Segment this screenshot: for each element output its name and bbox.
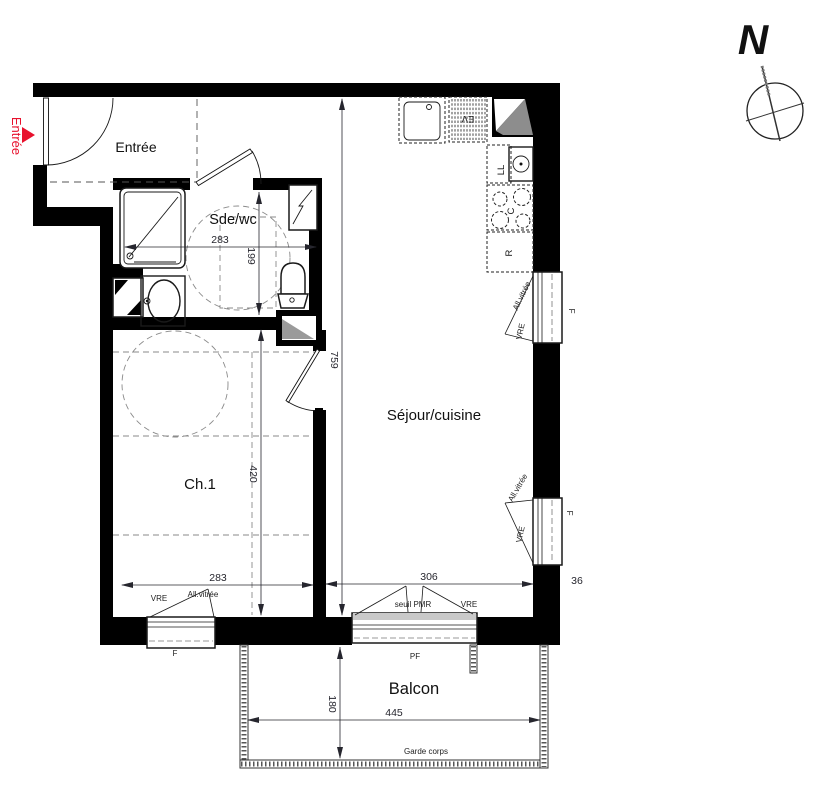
bathroom-fixtures bbox=[120, 188, 308, 326]
room-label-sdewc: Sde/wc bbox=[209, 212, 257, 228]
sink-label: EV bbox=[461, 113, 474, 124]
cooktop-burner-4 bbox=[516, 214, 530, 228]
window-glazing-label: All.vitrée bbox=[511, 280, 533, 312]
room-label-ch1: Ch.1 bbox=[184, 476, 216, 493]
window-bottom-f: VRE All.vitrée F bbox=[147, 589, 219, 658]
north-compass: N bbox=[738, 16, 804, 141]
room-label-entree: Entrée bbox=[115, 139, 156, 155]
compass-needle-tip bbox=[762, 66, 769, 95]
fridge-label: R bbox=[504, 249, 515, 256]
entry-marker: Entrée bbox=[9, 117, 35, 155]
wall-top bbox=[33, 83, 560, 97]
window-right-1: All.vitrée VRE F bbox=[505, 272, 576, 343]
window-shutter-label: VRE bbox=[514, 322, 526, 340]
windows: All.vitrée VRE F All.vitrée VRE F VRE Al… bbox=[147, 272, 576, 661]
cooktop-burner-1 bbox=[493, 192, 507, 206]
door-window-pf: seuil PMR VRE PF bbox=[352, 586, 477, 661]
wall-left-jog bbox=[33, 207, 113, 226]
sdewc-door-leaf bbox=[196, 149, 253, 186]
window-glazing-label: All.vitrée bbox=[188, 590, 219, 599]
room-label-sejour: Séjour/cuisine bbox=[387, 407, 481, 424]
toilet-tank bbox=[278, 294, 308, 308]
entry-door-swing bbox=[46, 98, 113, 165]
dim-sdewc-depth: 199 bbox=[245, 247, 257, 265]
cooktop-label: C bbox=[506, 207, 517, 214]
window-glazing-label: All.vitrée bbox=[506, 472, 529, 504]
window-frame bbox=[533, 272, 562, 343]
window-type-label: F bbox=[567, 309, 576, 314]
window-shutter-label: VRE bbox=[514, 525, 526, 543]
pf-type-label: PF bbox=[410, 652, 420, 661]
dim-sdewc-width: 283 bbox=[211, 234, 229, 246]
dim-ch1-width: 283 bbox=[209, 572, 227, 584]
dim-wall-return: 36 bbox=[571, 575, 583, 587]
north-label: N bbox=[738, 16, 770, 63]
room-label-balcon: Balcon bbox=[389, 680, 439, 698]
dim-balcon-width: 445 bbox=[385, 707, 403, 719]
ch1-door-leaf bbox=[286, 349, 320, 403]
wall-ch1-sejour-lower bbox=[313, 410, 326, 617]
entry-door-leaf bbox=[44, 98, 49, 165]
washbasin bbox=[148, 280, 180, 322]
entry-label: Entrée bbox=[9, 117, 24, 155]
washer-drum-dot bbox=[520, 163, 523, 166]
floor-plan-drawing: EV LL C R All.vitrée VRE F bbox=[0, 0, 830, 800]
wall-right-middle bbox=[533, 343, 560, 498]
garde-corps-label: Garde corps bbox=[404, 747, 448, 756]
wall-left-lower bbox=[100, 226, 113, 645]
pf-seuil-label: seuil PMR bbox=[395, 600, 432, 609]
floor-plan: EV LL C R All.vitrée VRE F bbox=[0, 0, 830, 800]
dim-ch1-depth: 420 bbox=[247, 465, 259, 483]
window-type-label: F bbox=[565, 511, 574, 516]
wall-bottom-right bbox=[477, 617, 558, 645]
ch1-door-swing bbox=[288, 402, 319, 412]
dim-sejour-width: 306 bbox=[420, 571, 438, 583]
walls bbox=[33, 83, 560, 645]
kitchen: EV LL C R bbox=[399, 97, 533, 272]
toilet-bowl bbox=[281, 263, 305, 294]
washer-zone bbox=[487, 145, 511, 183]
dim-sejour-depth: 759 bbox=[328, 351, 340, 369]
wall-bottom-middle bbox=[215, 617, 352, 645]
zone-lines bbox=[50, 99, 317, 615]
ch1-door-jamb bbox=[315, 408, 323, 415]
pf-seuil bbox=[353, 613, 476, 620]
washbasin-tap-dot bbox=[146, 300, 148, 302]
cooktop-burner-2 bbox=[514, 189, 531, 206]
kitchen-unit bbox=[399, 97, 445, 143]
washer-label: LL bbox=[496, 165, 507, 176]
pmr-circle-ch1 bbox=[122, 331, 228, 437]
window-type-label: F bbox=[173, 649, 178, 658]
compass-circle bbox=[747, 83, 803, 139]
window-shutter-label: VRE bbox=[151, 594, 167, 603]
pf-shutter-label: VRE bbox=[461, 600, 477, 609]
window-frame bbox=[533, 498, 562, 565]
wall-right-upper bbox=[533, 97, 560, 272]
dim-balcon-depth: 180 bbox=[326, 695, 338, 713]
